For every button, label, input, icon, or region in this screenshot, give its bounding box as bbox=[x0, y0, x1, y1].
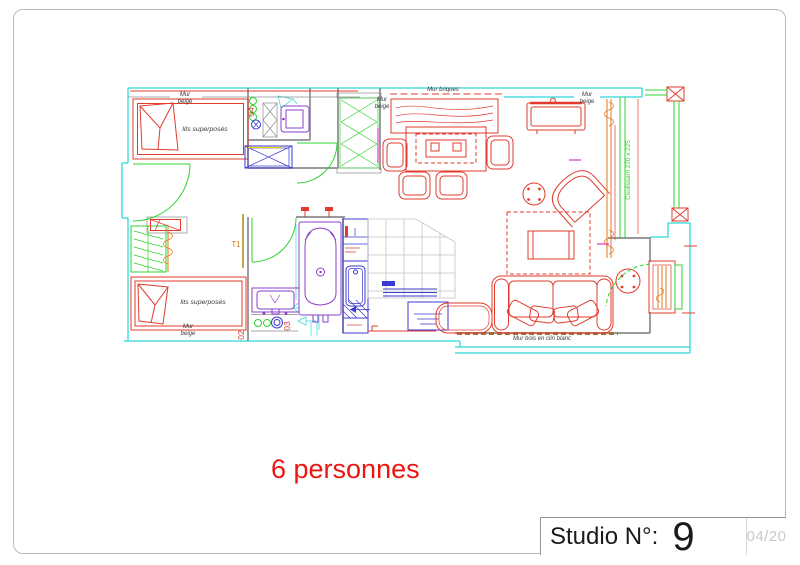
sofa bbox=[492, 276, 613, 333]
label-mur-bois: Mur bois en clin blanc bbox=[513, 336, 571, 342]
shower-room bbox=[245, 143, 337, 183]
bathtub bbox=[299, 222, 341, 322]
dining-chairs bbox=[383, 136, 513, 199]
kitchen-grill bbox=[382, 281, 437, 296]
studio-label: Studio N°: bbox=[550, 523, 658, 551]
label-mur-beige-mid-2: beige bbox=[375, 104, 390, 110]
laundry-strip bbox=[255, 317, 283, 328]
toilet bbox=[281, 106, 309, 132]
label-t1: T1 bbox=[231, 240, 241, 249]
shower-tray bbox=[245, 146, 292, 168]
label-mur-beige-mid-1: Mur bbox=[377, 97, 388, 103]
label-mur-beige-topright-1: Mur bbox=[582, 92, 593, 98]
kitchen bbox=[343, 219, 492, 333]
duct-column bbox=[263, 103, 277, 137]
post-mid bbox=[672, 208, 688, 221]
title-block: Studio N°: 9 04/20 bbox=[540, 517, 786, 555]
armchair bbox=[545, 163, 610, 227]
wc-room bbox=[250, 98, 310, 138]
wardrobe-hall bbox=[340, 98, 378, 168]
curtains bbox=[605, 99, 614, 258]
kitchen-sink-unit bbox=[343, 261, 370, 318]
dining-area bbox=[383, 99, 513, 199]
title-block-main: Studio N°: 9 bbox=[540, 518, 746, 555]
label-ref-03: 03 bbox=[282, 321, 292, 331]
label-lits-bottom: lits superposés bbox=[180, 299, 226, 306]
bathroom bbox=[243, 207, 341, 328]
window-door-left bbox=[133, 164, 190, 221]
kitchen-counter bbox=[368, 303, 492, 333]
sideboard bbox=[391, 99, 498, 133]
kitchen-tall-unit bbox=[343, 219, 368, 261]
label-ref-02: 02 bbox=[236, 330, 246, 340]
label-mur-beige-topleft-2: beige bbox=[178, 99, 193, 105]
label-mur-beige-bottom-1: Mur bbox=[183, 324, 194, 330]
studio-number: 9 bbox=[672, 517, 694, 557]
round-table-small bbox=[523, 183, 545, 205]
console-table bbox=[527, 98, 585, 134]
coffee-table bbox=[528, 231, 574, 259]
label-ref-04: 04 bbox=[246, 107, 256, 117]
label-mur-briques: Mur briques bbox=[427, 87, 459, 93]
dining-table bbox=[406, 127, 486, 171]
rug bbox=[507, 212, 590, 274]
kitchen-floor-tiles bbox=[368, 219, 455, 298]
kitchen-appliance bbox=[408, 302, 448, 330]
kitchen-base-unit bbox=[343, 318, 368, 333]
label-mur-beige-topright-2: beige bbox=[580, 99, 595, 105]
round-table-entry bbox=[616, 269, 640, 293]
post-top bbox=[667, 87, 684, 101]
label-coulissant: Coulissant 220 x 225 bbox=[625, 140, 632, 200]
page-ref: 04/20 bbox=[746, 518, 786, 555]
label-mur-beige-topleft-1: Mur bbox=[180, 92, 191, 98]
washbasin bbox=[252, 288, 299, 315]
label-lits-top: lits superposés bbox=[182, 126, 228, 133]
capacity-note: 6 personnes bbox=[271, 454, 420, 485]
valve-symbols bbox=[301, 207, 333, 217]
label-mur-beige-bottom-2: beige bbox=[181, 331, 196, 337]
